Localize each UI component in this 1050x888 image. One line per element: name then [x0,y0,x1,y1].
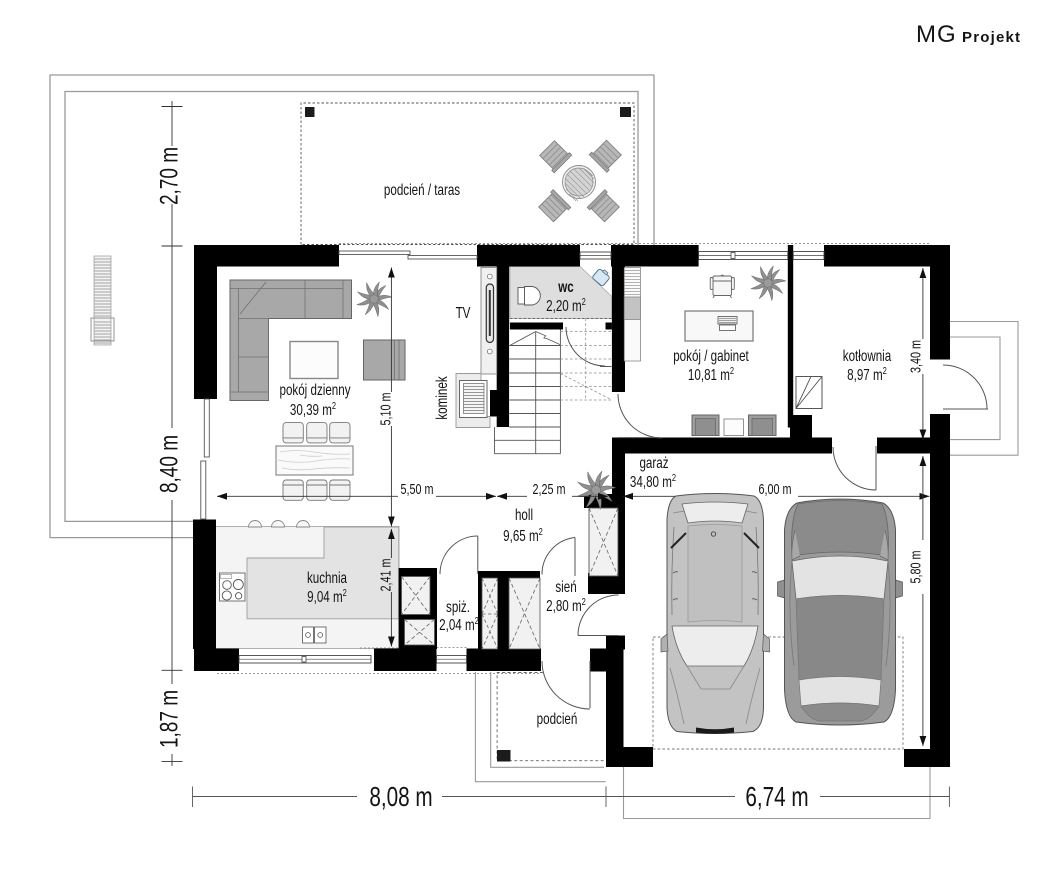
svg-text:9,04 m2: 9,04 m2 [307,587,347,605]
svg-text:garaż: garaż [639,454,668,471]
svg-text:2,70 m: 2,70 m [155,147,183,205]
svg-text:wc: wc [557,278,574,295]
svg-text:kominek: kominek [433,376,450,419]
svg-text:2,41 m: 2,41 m [377,558,394,591]
svg-text:3,40 m: 3,40 m [907,340,924,373]
svg-text:6,00 m: 6,00 m [759,480,792,497]
svg-text:34,80 m2: 34,80 m2 [630,472,676,490]
svg-text:2,80 m2: 2,80 m2 [546,596,586,614]
svg-text:kotłownia: kotłownia [843,347,892,364]
svg-text:2,20 m2: 2,20 m2 [546,296,586,314]
svg-text:5,50 m: 5,50 m [401,480,434,497]
svg-text:10,81 m2: 10,81 m2 [688,365,734,383]
svg-text:1,87 m: 1,87 m [155,690,183,748]
svg-text:30,39 m2: 30,39 m2 [290,400,336,418]
svg-text:kuchnia: kuchnia [307,569,347,586]
svg-text:spiż.: spiż. [446,598,470,615]
svg-text:5,10 m: 5,10 m [377,392,394,425]
svg-text:pokój dzienny: pokój dzienny [279,381,350,398]
svg-text:Projekt: Projekt [962,29,1021,46]
svg-text:5,80 m: 5,80 m [907,550,924,583]
svg-text:8,08 m: 8,08 m [369,782,432,813]
svg-text:holl: holl [515,506,533,523]
svg-text:2,04 m2: 2,04 m2 [439,615,479,633]
svg-text:6,74 m: 6,74 m [745,782,808,813]
svg-text:podcień: podcień [537,710,578,727]
svg-text:sień: sień [555,578,576,595]
svg-text:2,25 m: 2,25 m [533,480,566,497]
svg-text:MG: MG [916,21,957,48]
svg-text:8,97 m2: 8,97 m2 [847,365,887,383]
svg-text:9,65 m2: 9,65 m2 [503,526,543,544]
svg-text:8,40 m: 8,40 m [155,435,183,493]
svg-text:pokój / gabinet: pokój / gabinet [673,347,749,364]
svg-text:TV: TV [456,304,472,321]
svg-text:podcień / taras: podcień / taras [384,181,460,198]
